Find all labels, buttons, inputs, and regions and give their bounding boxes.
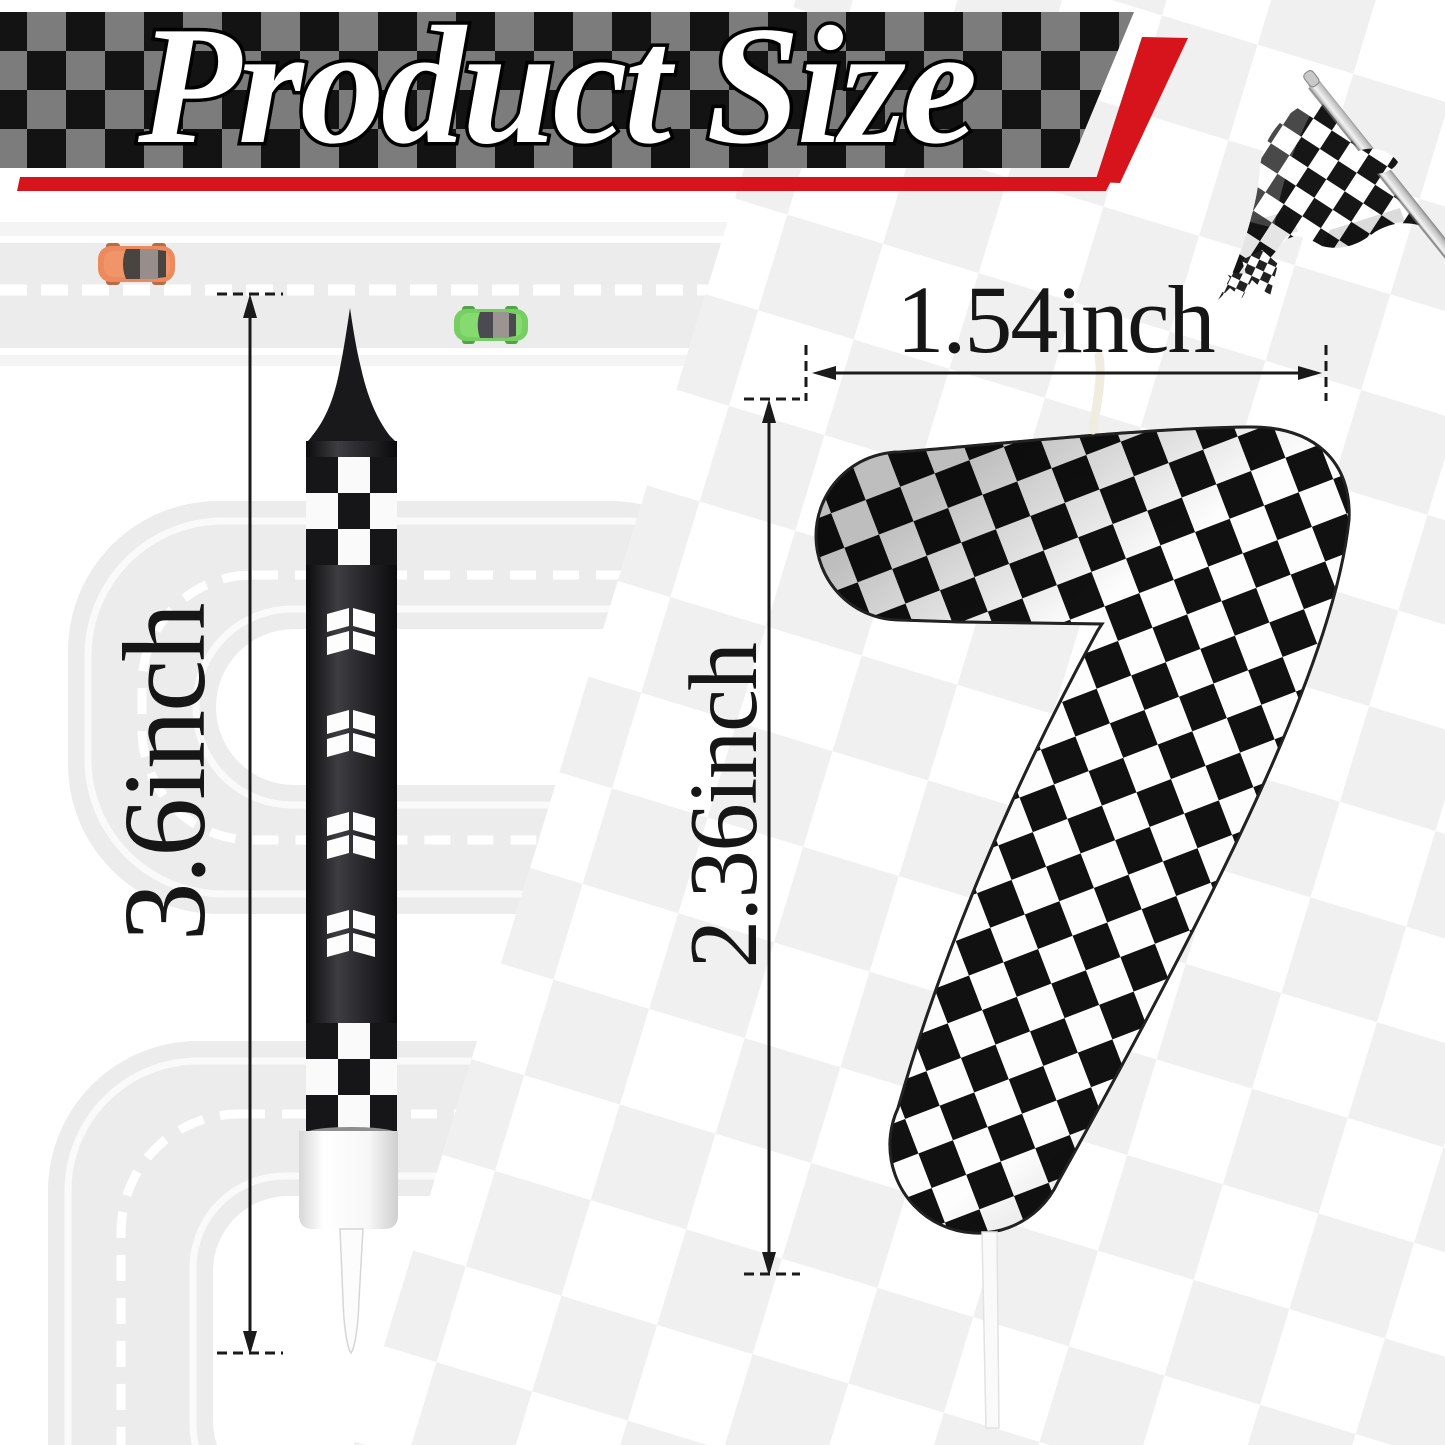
svg-text:1.54inch: 1.54inch bbox=[896, 266, 1214, 373]
svg-text:2.36inch: 2.36inch bbox=[670, 643, 777, 969]
svg-text:3.6inch: 3.6inch bbox=[99, 604, 230, 942]
svg-text:Product Size: Product Size bbox=[137, 0, 974, 179]
